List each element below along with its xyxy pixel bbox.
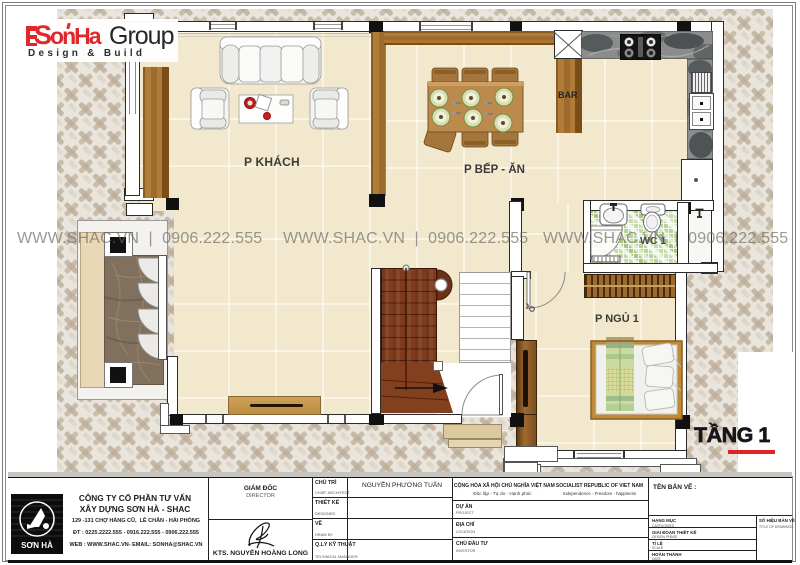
- svg-text:SƠN HÀ: SƠN HÀ: [21, 541, 53, 550]
